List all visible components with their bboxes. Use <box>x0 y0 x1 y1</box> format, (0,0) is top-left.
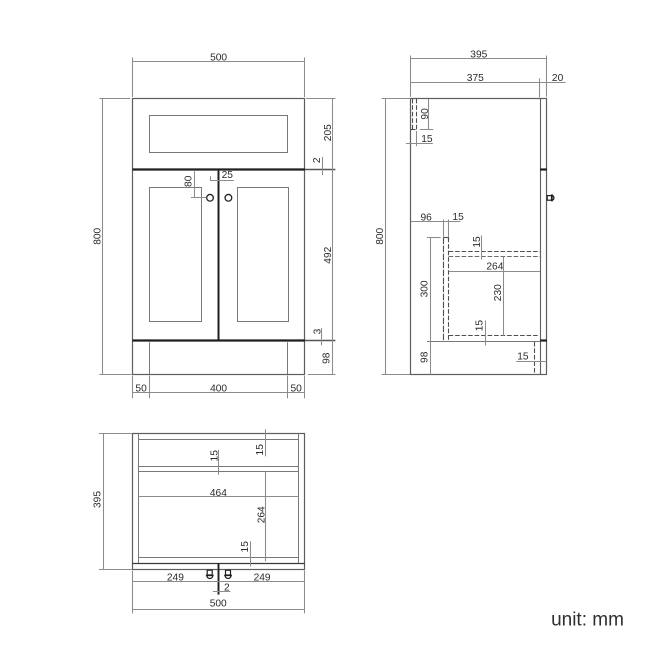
svg-text:464: 464 <box>210 488 227 499</box>
svg-text:90: 90 <box>420 108 431 120</box>
svg-text:395: 395 <box>470 50 487 61</box>
svg-text:15: 15 <box>210 450 221 462</box>
svg-text:249: 249 <box>254 573 271 584</box>
svg-text:2: 2 <box>224 582 230 593</box>
svg-text:25: 25 <box>222 170 234 181</box>
svg-text:375: 375 <box>467 73 484 84</box>
svg-text:50: 50 <box>135 384 147 395</box>
svg-text:395: 395 <box>92 491 103 508</box>
svg-text:264: 264 <box>256 506 267 523</box>
svg-text:15: 15 <box>421 134 433 145</box>
svg-text:15: 15 <box>475 320 486 332</box>
svg-text:15: 15 <box>452 212 464 223</box>
svg-text:264: 264 <box>486 262 503 273</box>
svg-text:15: 15 <box>472 236 483 248</box>
svg-text:400: 400 <box>210 384 227 395</box>
svg-text:50: 50 <box>291 384 303 395</box>
svg-text:80: 80 <box>184 175 195 187</box>
svg-text:unit: mm: unit: mm <box>551 610 624 631</box>
svg-text:205: 205 <box>323 124 334 141</box>
svg-text:230: 230 <box>493 284 504 301</box>
svg-text:3: 3 <box>313 328 324 334</box>
svg-text:98: 98 <box>322 352 333 364</box>
svg-text:2: 2 <box>312 157 323 163</box>
svg-text:96: 96 <box>421 212 433 223</box>
svg-text:98: 98 <box>419 351 430 363</box>
svg-text:500: 500 <box>210 52 227 63</box>
svg-text:249: 249 <box>167 573 184 584</box>
svg-text:800: 800 <box>375 227 386 244</box>
svg-text:20: 20 <box>552 73 564 84</box>
svg-text:300: 300 <box>419 280 430 297</box>
svg-text:492: 492 <box>323 246 334 263</box>
svg-text:15: 15 <box>517 351 529 362</box>
svg-text:15: 15 <box>240 541 251 553</box>
svg-text:15: 15 <box>255 444 266 456</box>
svg-text:800: 800 <box>92 227 103 244</box>
svg-text:500: 500 <box>210 598 227 609</box>
